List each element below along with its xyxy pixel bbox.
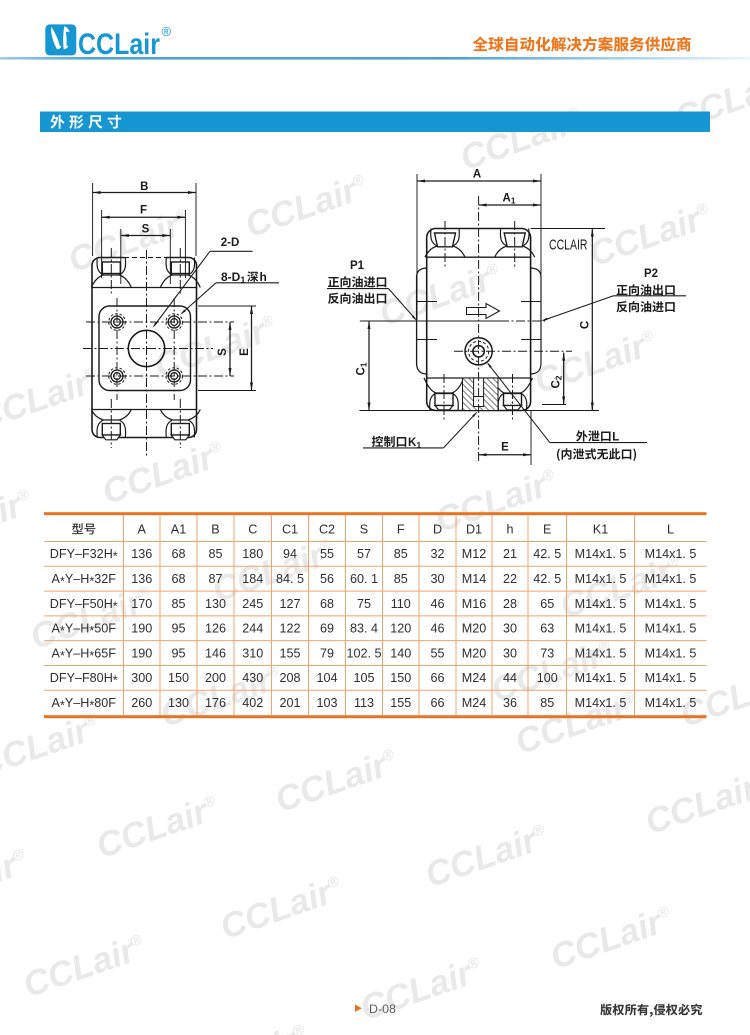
svg-text:176: 176 [205, 696, 226, 710]
svg-text:122: 122 [279, 622, 300, 636]
svg-text:B: B [211, 523, 219, 537]
svg-text:A*Y–H*50F: A*Y–H*50F [52, 622, 117, 639]
svg-text:85: 85 [394, 547, 408, 561]
svg-text:42. 5: 42. 5 [533, 547, 561, 561]
svg-text:69: 69 [320, 622, 334, 636]
svg-text:30: 30 [430, 572, 444, 586]
svg-text:CCLair®: CCLair® [545, 899, 678, 977]
svg-text:105: 105 [353, 671, 374, 685]
svg-text:127: 127 [279, 597, 300, 611]
svg-text:46: 46 [430, 597, 444, 611]
svg-text:63: 63 [540, 622, 554, 636]
svg-text:150: 150 [390, 671, 411, 685]
svg-text:44: 44 [503, 671, 517, 685]
svg-text:66: 66 [430, 671, 444, 685]
svg-text:M14: M14 [462, 572, 487, 586]
svg-text:M14x1. 5: M14x1. 5 [575, 646, 627, 660]
svg-text:CCLair®: CCLair® [640, 764, 750, 842]
svg-text:M14x1. 5: M14x1. 5 [645, 646, 697, 660]
svg-text:110: 110 [391, 597, 411, 611]
svg-text:104: 104 [316, 671, 337, 685]
svg-text:L: L [667, 523, 674, 537]
svg-text:CCLair®: CCLair® [0, 842, 33, 920]
svg-text:M14x1. 5: M14x1. 5 [575, 671, 627, 685]
svg-text:68: 68 [171, 547, 185, 561]
svg-text:83. 4: 83. 4 [350, 622, 378, 636]
svg-text:200: 200 [205, 671, 226, 685]
svg-text:E: E [543, 523, 551, 537]
svg-text:155: 155 [279, 646, 300, 660]
svg-text:244: 244 [242, 622, 263, 636]
svg-text:32: 32 [430, 547, 444, 561]
svg-text:402: 402 [242, 696, 263, 710]
svg-text:M14x1. 5: M14x1. 5 [645, 696, 697, 710]
svg-text:146: 146 [205, 646, 226, 660]
svg-text:190: 190 [131, 646, 152, 660]
svg-text:A*Y–H*80F: A*Y–H*80F [52, 696, 117, 713]
svg-text:140: 140 [390, 646, 411, 660]
svg-text:M14x1. 5: M14x1. 5 [645, 547, 697, 561]
svg-text:84. 5: 84. 5 [276, 572, 304, 586]
svg-text:M14x1. 5: M14x1. 5 [645, 622, 697, 636]
svg-text:75: 75 [357, 597, 371, 611]
svg-text:46: 46 [430, 622, 444, 636]
svg-text:60. 1: 60. 1 [350, 572, 378, 586]
svg-text:M14x1. 5: M14x1. 5 [645, 572, 697, 586]
svg-text:126: 126 [205, 622, 226, 636]
svg-text:245: 245 [242, 597, 263, 611]
svg-text:DFY–F50H*: DFY–F50H* [50, 597, 118, 614]
svg-text:130: 130 [168, 696, 189, 710]
svg-text:DFY–F32H*: DFY–F32H* [50, 547, 118, 564]
svg-text:57: 57 [357, 547, 371, 561]
svg-text:73: 73 [540, 646, 554, 660]
svg-text:155: 155 [390, 696, 411, 710]
svg-text:85: 85 [540, 696, 554, 710]
svg-text:208: 208 [279, 671, 300, 685]
svg-text:M16: M16 [462, 597, 487, 611]
svg-text:100: 100 [537, 671, 558, 685]
svg-text:103: 103 [316, 696, 337, 710]
svg-text:36: 36 [503, 696, 517, 710]
svg-text:85: 85 [208, 547, 222, 561]
svg-text:136: 136 [131, 572, 152, 586]
svg-text:130: 130 [205, 597, 226, 611]
svg-text:M14x1. 5: M14x1. 5 [575, 547, 627, 561]
svg-text:CCLair®: CCLair® [91, 788, 224, 866]
svg-text:430: 430 [242, 671, 263, 685]
svg-text:A1: A1 [171, 523, 186, 537]
svg-text:180: 180 [242, 547, 263, 561]
svg-text:184: 184 [242, 572, 263, 586]
svg-text:A*Y–H*32F: A*Y–H*32F [52, 572, 117, 589]
svg-text:85: 85 [171, 597, 185, 611]
svg-text:C1: C1 [282, 523, 298, 537]
svg-text:D-08: D-08 [369, 1002, 396, 1016]
svg-text:65: 65 [540, 597, 554, 611]
svg-text:136: 136 [131, 547, 152, 561]
svg-text:D: D [433, 523, 442, 537]
svg-text:D1: D1 [466, 523, 482, 537]
svg-text:M14x1. 5: M14x1. 5 [575, 572, 627, 586]
svg-text:F: F [397, 523, 405, 537]
svg-text:CCLair®: CCLair® [420, 817, 553, 895]
svg-text:M14x1. 5: M14x1. 5 [575, 622, 627, 636]
svg-text:A*Y–H*65F: A*Y–H*65F [52, 646, 117, 663]
svg-text:C2: C2 [319, 523, 335, 537]
svg-text:22: 22 [503, 572, 517, 586]
svg-text:94: 94 [283, 547, 297, 561]
svg-text:S: S [360, 523, 368, 537]
svg-text:95: 95 [171, 646, 185, 660]
svg-text:h: h [506, 523, 513, 537]
svg-text:42. 5: 42. 5 [533, 572, 561, 586]
svg-text:CCLair®: CCLair® [215, 869, 348, 947]
svg-text:M14x1. 5: M14x1. 5 [575, 597, 627, 611]
svg-text:150: 150 [168, 671, 189, 685]
svg-text:190: 190 [131, 622, 152, 636]
svg-text:M14x1. 5: M14x1. 5 [575, 696, 627, 710]
svg-text:87: 87 [208, 572, 222, 586]
svg-text:120: 120 [390, 622, 411, 636]
svg-text:79: 79 [320, 646, 334, 660]
svg-text:M12: M12 [462, 547, 487, 561]
svg-text:95: 95 [171, 622, 185, 636]
svg-text:M24: M24 [462, 671, 487, 685]
svg-text:21: 21 [503, 547, 517, 561]
svg-text:K1: K1 [593, 523, 608, 537]
svg-text:55: 55 [430, 646, 444, 660]
svg-text:M20: M20 [462, 622, 487, 636]
svg-text:300: 300 [131, 671, 152, 685]
svg-text:68: 68 [320, 597, 334, 611]
svg-text:85: 85 [394, 572, 408, 586]
svg-text:M14x1. 5: M14x1. 5 [645, 671, 697, 685]
svg-text:DFY–F80H*: DFY–F80H* [50, 671, 118, 688]
svg-text:55: 55 [320, 547, 334, 561]
svg-text:30: 30 [503, 646, 517, 660]
svg-text:68: 68 [171, 572, 185, 586]
svg-text:260: 260 [131, 696, 152, 710]
svg-text:A: A [138, 523, 147, 537]
svg-text:201: 201 [279, 696, 300, 710]
svg-text:102. 5: 102. 5 [346, 646, 381, 660]
svg-text:310: 310 [242, 646, 263, 660]
svg-text:30: 30 [503, 622, 517, 636]
svg-text:M20: M20 [462, 646, 487, 660]
svg-text:66: 66 [430, 696, 444, 710]
svg-text:28: 28 [503, 597, 517, 611]
svg-text:M14x1. 5: M14x1. 5 [645, 597, 697, 611]
svg-text:170: 170 [131, 597, 152, 611]
svg-text:M24: M24 [462, 696, 487, 710]
svg-text:113: 113 [354, 696, 374, 710]
svg-text:56: 56 [320, 572, 334, 586]
svg-text:C: C [248, 523, 257, 537]
